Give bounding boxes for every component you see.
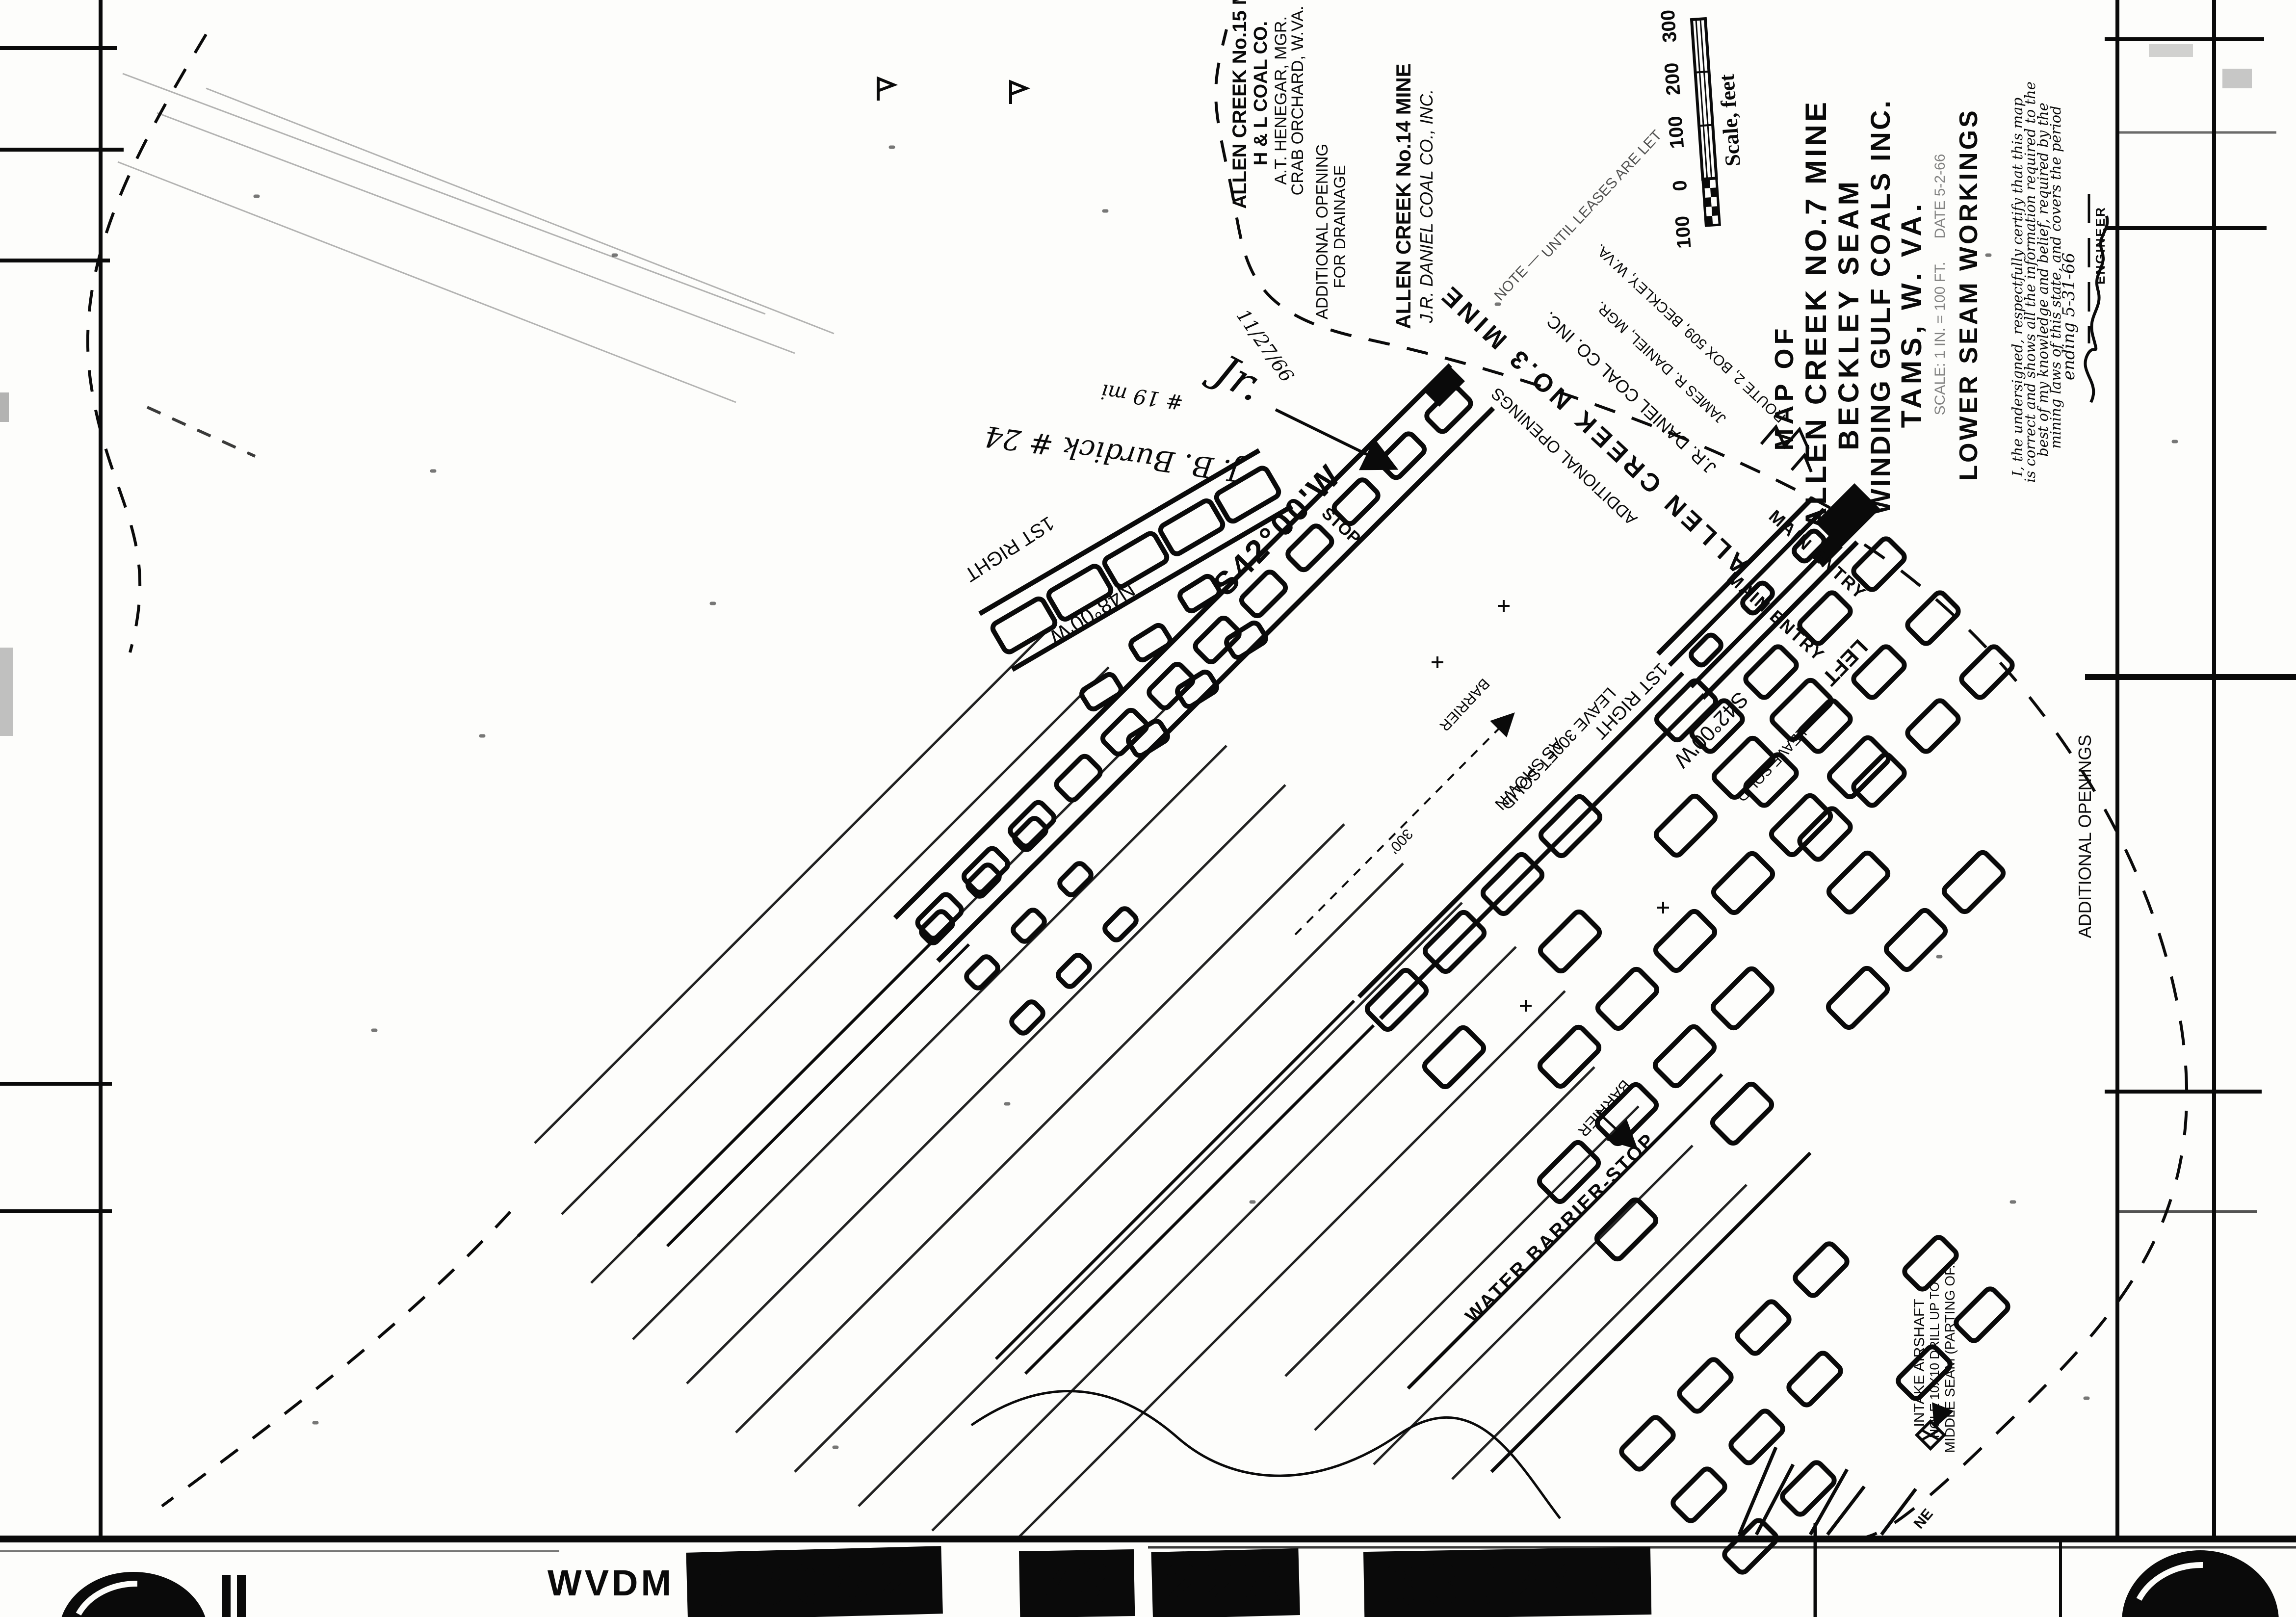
film-agency-code: WVDM: [548, 1563, 674, 1603]
film-strip: WVDM 03082 73 22X 330249: [0, 1523, 2296, 1617]
title-place: TAMS, W. VA.: [1896, 200, 1928, 428]
barrier-300-label: 300': [1385, 826, 1416, 857]
title-seam: BECKLEY SEAM: [1833, 178, 1865, 450]
mine15-address: CRAB ORCHARD, W.VA.: [1288, 6, 1307, 196]
title-mine-name: ALLEN CREEK NO.7 MINE: [1800, 99, 1832, 529]
mine15-company: H & L COAL CO.: [1251, 21, 1271, 165]
mine15-manager: A.T. HENEGAR, MGR.: [1272, 16, 1290, 185]
mine-workings: [895, 365, 2014, 1575]
film-code-block-3: 22X: [1151, 1547, 1300, 1617]
certification-block: I, the undersigned, respectfully certify…: [2009, 81, 2108, 483]
mine3-note-prefix: NOTE —: [1491, 249, 1543, 304]
map-labels: MAIN ENTRY MAIN ENTRY STOP S42°00'W S42°…: [961, 384, 2095, 1532]
film-code-3-digits: 22X: [1164, 1548, 1287, 1617]
handwritten-count: # 19 mi: [1099, 379, 1185, 415]
film-code-block-2: 73: [1019, 1548, 1135, 1617]
cert-line-5: ending 5-31-66: [2059, 253, 2079, 380]
water-barrier-lines: [1295, 714, 1810, 1472]
bearing-main-label-2: S42°00'W: [1669, 687, 1753, 772]
handwritten-name: J. B. Burdick # 24: [982, 419, 1247, 489]
title-block: MAP OF ALLEN CREEK NO.7 MINE BECKLEY SEA…: [1770, 99, 1983, 529]
scale-tick-100: 100: [1665, 115, 1689, 150]
film-reel-left-icon: [59, 1572, 246, 1617]
mine14-block: ALLEN CREEK No.14 MINE J.R. DANIEL COAL …: [1392, 63, 1436, 329]
title-lower-seam: LOWER SEAM WORKINGS: [1955, 108, 1983, 480]
title-scale-note: SCALE: 1 IN. = 100 FT.: [1932, 262, 1948, 416]
mine-map-canvas: 300 200 100 0 100 Scale, feet MAP OF ALL…: [0, 0, 2296, 1617]
title-company: WINDING GULF COALS INC.: [1865, 99, 1896, 515]
film-code-2-digits: 73: [1036, 1549, 1118, 1617]
intake-airshaft-label-2: HOLE 10X10 DRILL UP TO: [1927, 1282, 1942, 1438]
mine15-block: ALLEN CREEK No.15 MINE H & L COAL CO. A.…: [1229, 0, 1307, 209]
stop-label: STOP: [1318, 504, 1364, 548]
mine15-name: ALLEN CREEK No.15 MINE: [1229, 0, 1251, 209]
mine14-name: ALLEN CREEK No.14 MINE: [1392, 63, 1415, 329]
scale-tick-100b: 100: [1671, 215, 1696, 249]
mine3-manager: JAMES R. DANIEL, MGR.: [1592, 298, 1729, 427]
film-code-1-digits: 03082: [708, 1546, 921, 1617]
scale-tick-200: 200: [1661, 62, 1685, 96]
scale-bar-caption: Scale, feet: [1715, 73, 1745, 167]
additional-openings-label-right: ADDITIONAL OPENINGS: [2075, 735, 2095, 939]
drainage-label-line1: ADDITIONAL OPENING: [1313, 144, 1331, 319]
scale-bar: 300 200 100 0 100 Scale, feet: [1657, 5, 1751, 250]
film-code-4-digits: 330249: [1383, 1547, 1631, 1617]
mine3-name: ALLEN CREEK NO.3 MINE: [1434, 278, 1754, 580]
drainage-portal-icon: [1423, 365, 1465, 407]
drainage-label: ADDITIONAL OPENING FOR DRAINAGE: [1313, 144, 1349, 319]
mine14-company: J.R. DANIEL COAL CO., INC.: [1416, 89, 1436, 324]
flag-marker-icon: [878, 78, 1026, 104]
title-date-note: DATE 5-2-66: [1932, 154, 1948, 239]
scale-tick-0: 0: [1669, 180, 1691, 192]
title-map-of: MAP OF: [1770, 324, 1799, 450]
film-code-block-4: 330249: [1363, 1547, 1651, 1617]
drainage-label-line2: FOR DRAINAGE: [1331, 165, 1349, 288]
handwritten-notes: J. B. Burdick # 24 # 19 mi Jr. 11/27/66: [982, 305, 1396, 489]
scale-tick-300: 300: [1657, 9, 1681, 43]
cert-engineer-title: ENGINEER: [2093, 206, 2108, 285]
left-entry-label: LEFT: [1818, 634, 1873, 690]
mine3-note-suffix: UNTIL LEASES ARE LET: [1539, 127, 1665, 261]
film-code-block-1: 03082: [686, 1546, 942, 1617]
intake-airshaft-label-1: INTAKE AIRSHAFT: [1911, 1299, 1928, 1427]
leave-solid-label-3: LEAVE SOLID: [1733, 725, 1810, 805]
microfilm-scan-sheet: 300 200 100 0 100 Scale, feet MAP OF ALL…: [0, 0, 2296, 1617]
scale-bar-checker: [1703, 178, 1720, 226]
main-entry-label-2: MAIN ENTRY: [1723, 568, 1829, 666]
intake-airshaft-label-3: MIDDLE SEAM (PARTING OF...: [1942, 1257, 1957, 1453]
film-reel-right-icon: [2122, 1550, 2279, 1617]
barrier-label-1: BARRIER: [1436, 675, 1492, 734]
